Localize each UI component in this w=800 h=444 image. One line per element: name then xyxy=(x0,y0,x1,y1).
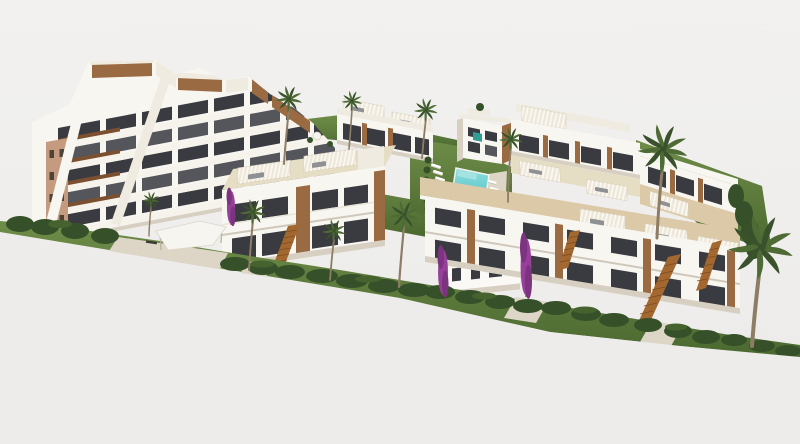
render-canvas xyxy=(0,0,800,444)
wood-panel xyxy=(698,178,703,204)
architectural-rendering xyxy=(0,0,800,444)
wood-panel xyxy=(374,170,385,242)
garden-parasol xyxy=(313,132,321,140)
wood-panel xyxy=(543,135,548,160)
wood-panel xyxy=(670,169,675,195)
roof-shrub xyxy=(476,103,484,111)
wood-panel xyxy=(296,185,310,253)
wood-panel xyxy=(575,141,580,166)
wood-panel xyxy=(362,123,367,146)
b-roof-box xyxy=(358,146,384,170)
shrub xyxy=(327,141,333,147)
shrub xyxy=(307,137,313,143)
wood-panel xyxy=(607,147,612,172)
tower-side-shadow xyxy=(457,118,463,162)
